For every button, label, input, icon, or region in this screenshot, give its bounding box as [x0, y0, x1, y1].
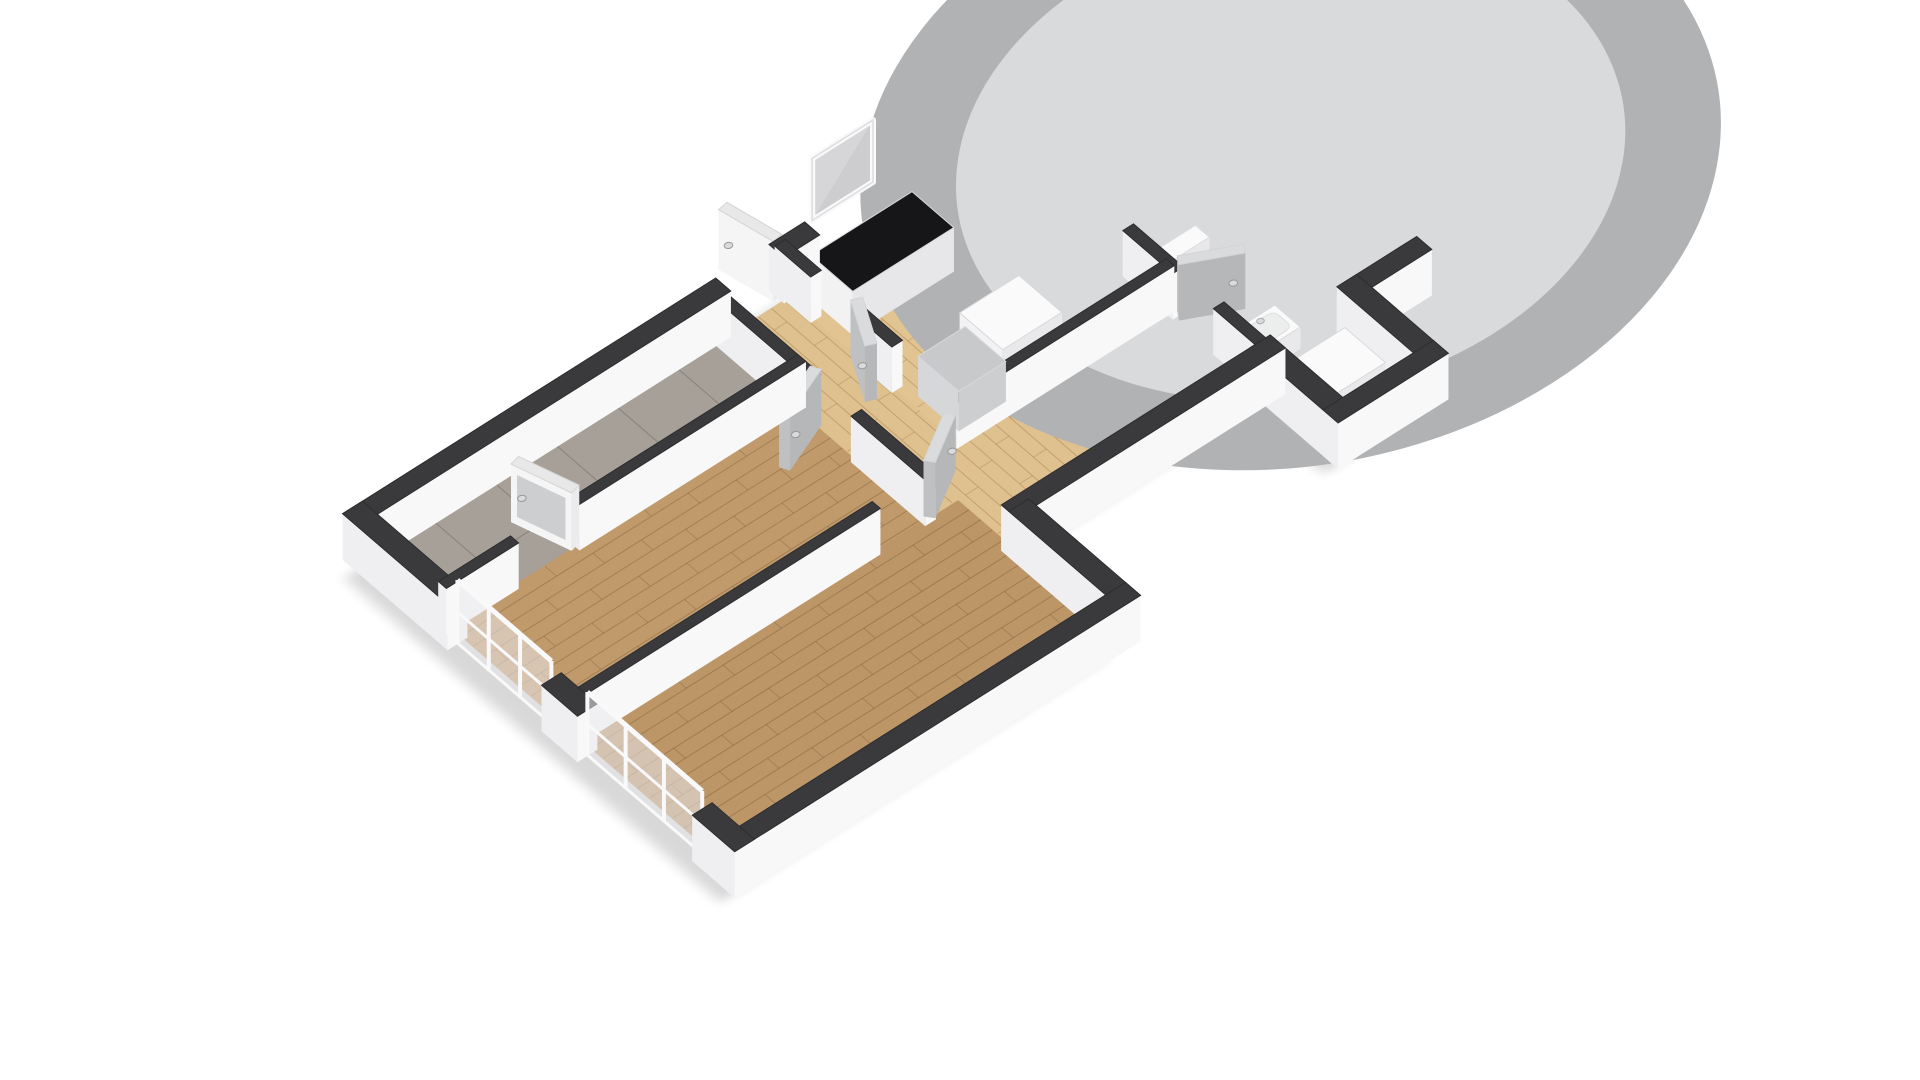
floor-plan-viewport: [0, 0, 1920, 1080]
floor-plan-3d-render: [0, 0, 1920, 1080]
scene: [231, 0, 1854, 905]
